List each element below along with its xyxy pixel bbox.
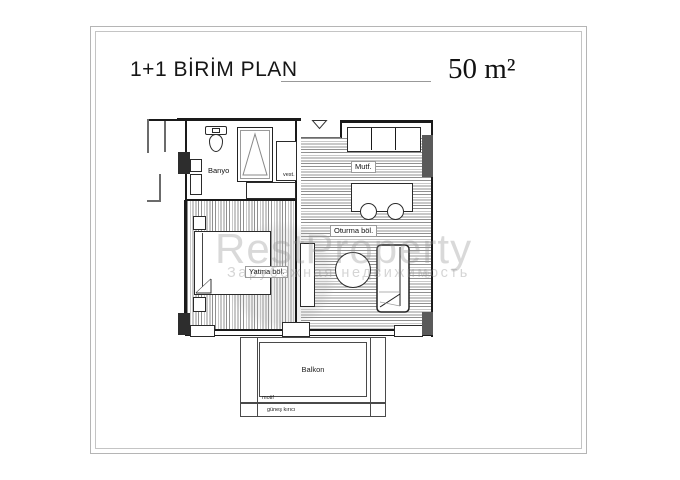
entrance-arrow-icon bbox=[311, 119, 328, 130]
watermark-tagline: Зарубежная недвижимость bbox=[227, 265, 470, 281]
balcony-floor: Balkon bbox=[259, 342, 367, 397]
balcony-outline: Balkon bbox=[240, 337, 386, 403]
nightstand-2 bbox=[193, 297, 206, 312]
area-label: 50 m² bbox=[448, 53, 516, 86]
toilet-icon bbox=[205, 126, 227, 153]
bathroom-label: Banyo bbox=[208, 166, 229, 175]
title-divider-line bbox=[281, 81, 431, 82]
wall-left-protrusion-vert1 bbox=[147, 119, 149, 153]
page-title: 1+1 BİRİM PLAN bbox=[130, 58, 297, 82]
wall-left-protrusion-vert2 bbox=[164, 121, 166, 152]
floor-plan-page: 1+1 BİRİM PLAN 50 m² Banyo bbox=[0, 0, 680, 480]
watermark-registered-icon: ® bbox=[424, 270, 431, 280]
column-bottom-left bbox=[178, 313, 190, 335]
wall-bathroom-bottom bbox=[185, 199, 297, 201]
wall-kitchen-stub bbox=[340, 120, 342, 138]
wall-left-protrusion-bottom bbox=[147, 200, 160, 202]
nightstand-1 bbox=[193, 216, 206, 230]
window-bedroom bbox=[190, 325, 215, 337]
bathroom-cabinet-1 bbox=[190, 159, 202, 172]
wall-top-kitchen bbox=[341, 120, 433, 123]
motif-label: motif bbox=[262, 395, 274, 401]
stool-icon-2 bbox=[387, 203, 404, 220]
window-living bbox=[394, 325, 423, 337]
balcony-door bbox=[282, 322, 310, 337]
stool-icon-1 bbox=[360, 203, 377, 220]
kitchen-counter bbox=[347, 127, 421, 152]
watermark-brand: RestProperty bbox=[215, 228, 472, 270]
vestibule-label: vest. bbox=[283, 172, 295, 178]
balcony-label: Balkon bbox=[302, 365, 325, 374]
sun-breaker-label: güneş kırıcı bbox=[267, 407, 295, 413]
wall-top-bathroom bbox=[177, 118, 301, 121]
wall-left-lower bbox=[184, 200, 187, 330]
column-top-left bbox=[178, 152, 190, 174]
kitchen-label: Mutf. bbox=[351, 161, 376, 173]
shower-icon bbox=[237, 127, 273, 182]
column-top-right bbox=[422, 135, 433, 177]
wall-left-protrusion-vert3 bbox=[159, 174, 161, 202]
bathroom-cabinet-2 bbox=[190, 174, 202, 195]
wall-left-protrusion-top bbox=[147, 119, 178, 121]
sun-breaker-strip: güneş kırıcı bbox=[240, 403, 386, 417]
entry-landing-edge bbox=[301, 137, 341, 138]
hall-wardrobe bbox=[246, 182, 296, 199]
column-bottom-right bbox=[422, 312, 433, 335]
